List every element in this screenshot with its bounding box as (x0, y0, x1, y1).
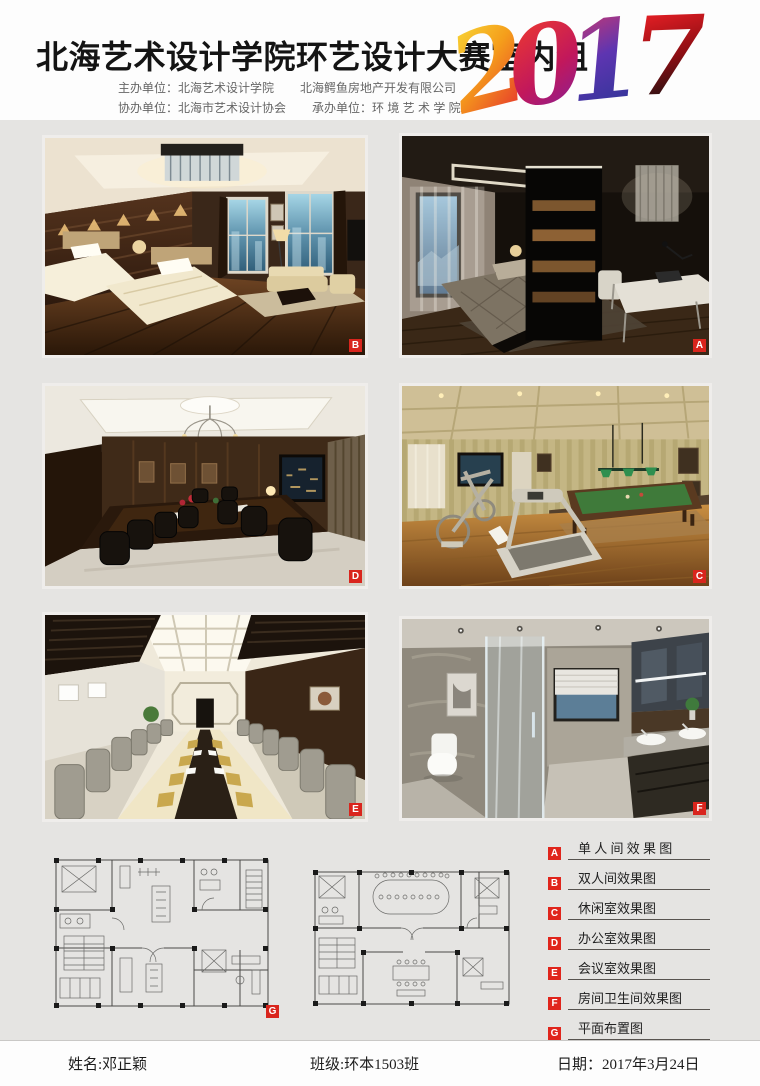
legend: A 单 人 间 效 果 图 B 双人间效果图 C 休闲室效果图 D 办公室效果图… (548, 838, 748, 1048)
legend-item-d: D 办公室效果图 (548, 928, 748, 950)
class-info: 班级:环本1503班 (310, 1053, 419, 1074)
date-label: 日期： (557, 1057, 602, 1073)
conference-room-rendering (45, 615, 365, 819)
photo-leisure-room: C (399, 383, 712, 589)
legend-item-f: F 房间卫生间效果图 (548, 988, 748, 1010)
floor-plan-right (311, 866, 515, 1010)
legend-label-g: 平面布置图 (568, 1018, 710, 1040)
leisure-room-rendering (402, 386, 709, 586)
author-name: 姓名:邓正颖 (68, 1053, 147, 1074)
author-name-label: 姓名: (68, 1057, 102, 1073)
co-organizer: 协办单位：北海市艺术设计协会 (118, 98, 286, 118)
photo-tag-a: A (693, 339, 706, 352)
photo-single-room: A (399, 133, 712, 358)
legend-key-d: D (548, 937, 561, 950)
legend-item-a: A 单 人 间 效 果 图 (548, 838, 748, 860)
legend-key-e: E (548, 967, 561, 980)
photo-bathroom: F (399, 616, 712, 821)
floor-plan-right-drawing (311, 866, 515, 1010)
legend-label-f: 房间卫生间效果图 (568, 988, 710, 1010)
author-name-value: 邓正颖 (102, 1057, 147, 1073)
single-room-rendering (402, 136, 709, 355)
undertaker: 承办单位：环 境 艺 术 学 院 (312, 98, 461, 118)
legend-label-a: 单 人 间 效 果 图 (568, 838, 710, 860)
legend-key-a: A (548, 847, 561, 860)
photo-office-room: D (42, 383, 368, 589)
date-value: 2017年3月24日 (602, 1057, 700, 1073)
organizer-line-1: 主办单位：北海艺术设计学院 北海鳄鱼房地产开发有限公司 (118, 78, 461, 98)
legend-key-c: C (548, 907, 561, 920)
bathroom-rendering (402, 619, 709, 818)
competition-poster: 北海艺术设计学院环艺设计大赛室内组 主办单位：北海艺术设计学院 北海鳄鱼房地产开… (0, 0, 760, 1086)
organizer-line-2: 协办单位：北海市艺术设计协会 承办单位：环 境 艺 术 学 院 (118, 98, 461, 118)
photo-tag-d: D (349, 570, 362, 583)
legend-key-f: F (548, 997, 561, 1010)
double-room-rendering (45, 138, 365, 355)
logo-digit-7: 7 (631, 0, 710, 118)
photo-double-room: B (42, 135, 368, 358)
sponsor-company: 北海鳄鱼房地产开发有限公司 (300, 78, 456, 98)
year-2017-logo: 2017 (447, 0, 736, 152)
photo-tag-e: E (349, 803, 362, 816)
legend-label-d: 办公室效果图 (568, 928, 710, 950)
photo-tag-b: B (349, 339, 362, 352)
legend-label-b: 双人间效果图 (568, 868, 710, 890)
legend-item-e: E 会议室效果图 (548, 958, 748, 980)
organizer-lines: 主办单位：北海艺术设计学院 北海鳄鱼房地产开发有限公司 协办单位：北海市艺术设计… (118, 78, 461, 118)
date-info: 日期：2017年3月24日 (557, 1053, 700, 1074)
class-value: 环本1503班 (344, 1057, 419, 1073)
floor-plan-left (52, 852, 278, 1016)
photo-tag-c: C (693, 570, 706, 583)
footer-bar: 姓名:邓正颖 班级:环本1503班 日期：2017年3月24日 (0, 1041, 760, 1086)
host-unit: 主办单位：北海艺术设计学院 (118, 78, 274, 98)
floor-plan-left-drawing (52, 852, 278, 1016)
legend-item-b: B 双人间效果图 (548, 868, 748, 890)
legend-key-g: G (548, 1027, 561, 1040)
legend-key-b: B (548, 877, 561, 890)
legend-item-c: C 休闲室效果图 (548, 898, 748, 920)
photo-tag-f: F (693, 802, 706, 815)
photo-conference-room: E (42, 612, 368, 822)
office-rendering (45, 386, 365, 586)
legend-label-e: 会议室效果图 (568, 958, 710, 980)
plan-tag-g: G (266, 1005, 279, 1018)
class-label: 班级: (310, 1057, 344, 1073)
legend-item-g: G 平面布置图 (548, 1018, 748, 1040)
legend-label-c: 休闲室效果图 (568, 898, 710, 920)
